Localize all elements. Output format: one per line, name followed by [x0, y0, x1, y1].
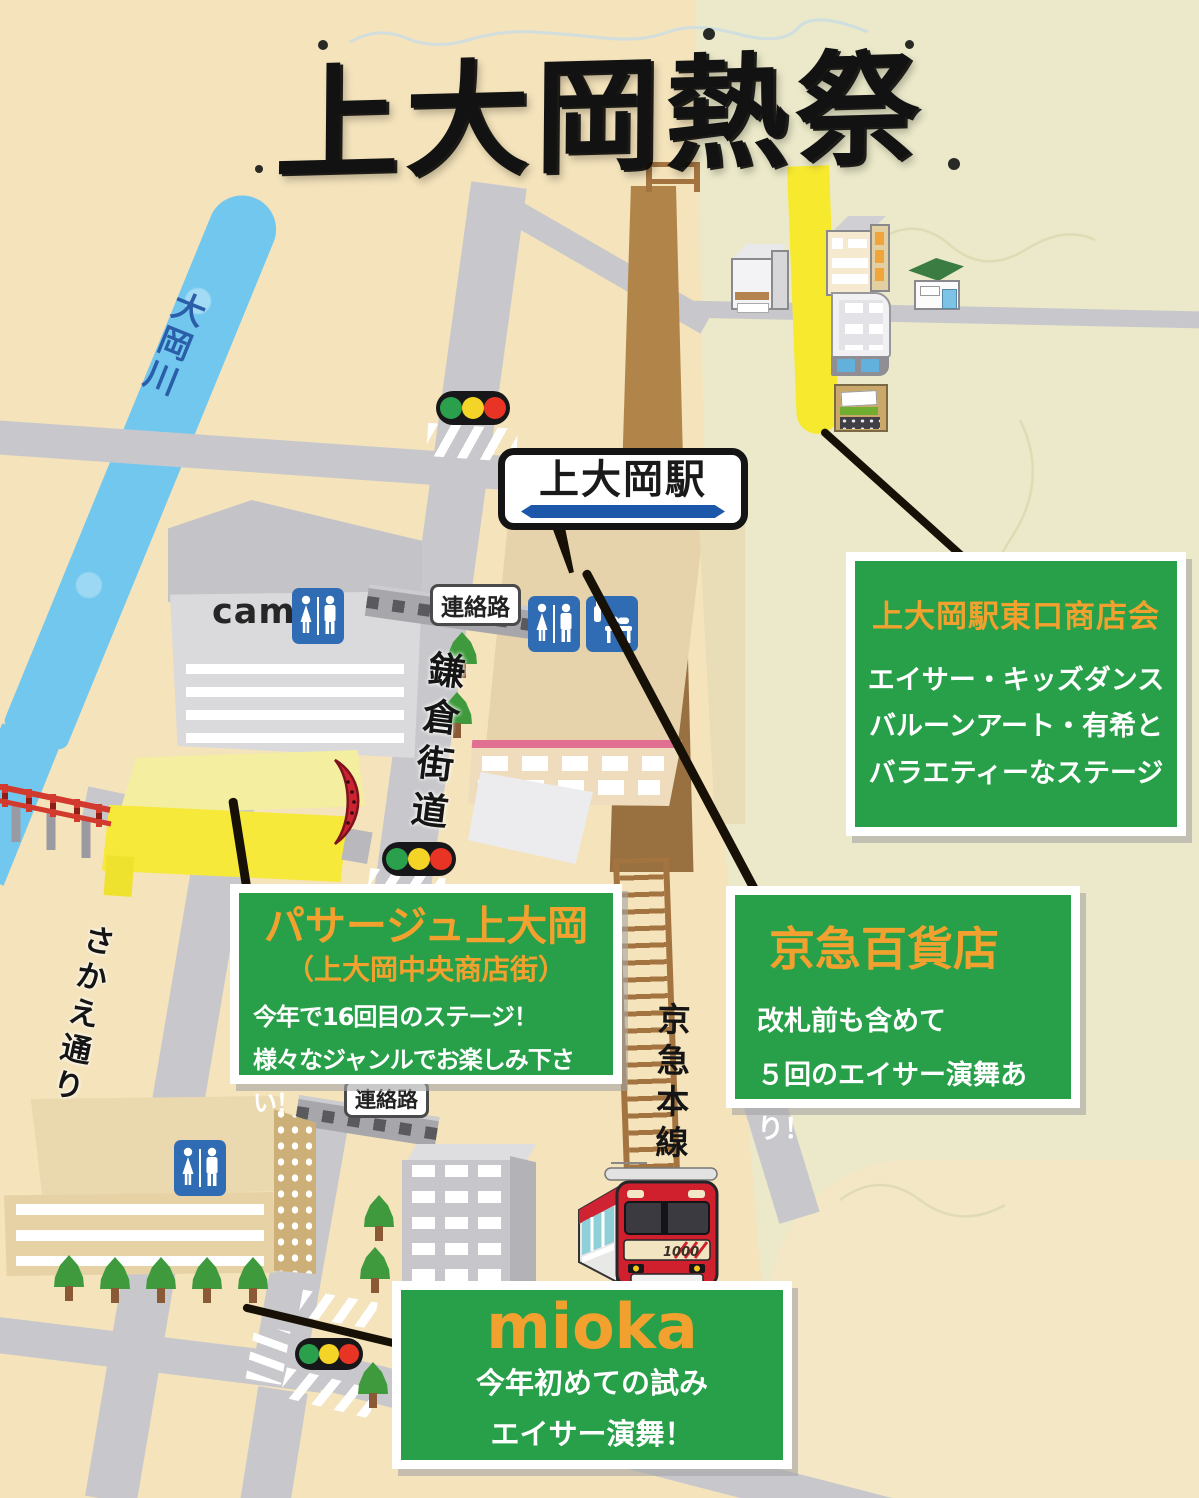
ink-splatter — [255, 165, 263, 173]
ink-splatter — [703, 28, 715, 40]
infobox-mioka: mioka 今年初めての試み エイサー演舞！ — [392, 1281, 792, 1469]
infobox-line: バラエティーなステージ — [855, 751, 1177, 797]
infobox-line: 今年で16回目のステージ！ — [239, 996, 613, 1039]
station-windows — [482, 756, 664, 771]
ink-splatter — [318, 40, 328, 50]
tree-icon — [52, 1255, 86, 1301]
infobox-passage-kamiooka: パサージュ上大岡 （上大岡中央商店街） 今年で16回目のステージ！ 様々なジャン… — [230, 884, 622, 1084]
white-box-building — [731, 236, 787, 308]
awning-shop — [834, 380, 888, 430]
traffic-light-icon — [382, 842, 456, 876]
infobox-line: 今年初めての試み — [401, 1358, 783, 1409]
infobox-keikyu-department-store: 京急百貨店 改札前も含めて ５回のエイサー演舞あり！ — [726, 886, 1080, 1108]
blue-line-bar — [521, 505, 725, 518]
house-body — [914, 280, 960, 310]
station-sign-label: 上大岡駅 — [505, 458, 741, 502]
shop-body — [834, 384, 888, 432]
sakae-dori-label: さかえ通り — [39, 919, 121, 1109]
terrain-southeast-region — [770, 1160, 1199, 1498]
station-pink-stripe — [468, 740, 682, 748]
window — [920, 286, 940, 296]
building-band — [735, 292, 769, 300]
building-side — [870, 224, 890, 292]
ink-splatter — [545, 82, 553, 90]
passage-arcade-leg — [104, 855, 135, 897]
traffic-light-icon — [436, 391, 510, 425]
train-number: 1000 — [663, 1245, 699, 1260]
door — [942, 289, 957, 309]
infobox-line: エイサー・キッズダンス — [855, 658, 1177, 704]
window — [875, 250, 884, 263]
infobox-line: エイサー演舞！ — [401, 1409, 783, 1460]
infobox-title: パサージュ上大岡 — [239, 905, 613, 948]
storefront — [840, 417, 880, 429]
ink-splatter — [905, 40, 914, 49]
road-north-fork — [493, 192, 713, 334]
green-roof-house — [906, 258, 964, 308]
infobox-line: 改札前も含めて — [735, 995, 1071, 1049]
tree-icon — [236, 1257, 270, 1303]
restroom-icon — [174, 1140, 226, 1196]
tree-icon — [144, 1257, 178, 1303]
infobox-line: バルーンアート・有希と — [855, 704, 1177, 750]
tree-icon — [190, 1257, 224, 1303]
window — [832, 274, 868, 284]
cream-office-building — [826, 216, 886, 296]
shop-window — [837, 359, 855, 372]
window — [832, 238, 843, 249]
infobox-line: ５回のエイサー演舞あり！ — [735, 1049, 1071, 1157]
window — [875, 268, 884, 281]
traffic-light-icon — [295, 1338, 363, 1370]
window — [832, 258, 868, 268]
bridge-icon — [0, 762, 114, 860]
passage-arcade — [102, 800, 348, 882]
station-sign: 上大岡駅 — [498, 448, 748, 530]
festival-map: camio 連絡路 連絡路 — [0, 0, 1199, 1498]
tree-icon — [358, 1247, 392, 1293]
window — [875, 232, 884, 245]
renrakuro-tag-upper: 連絡路 — [430, 584, 521, 626]
infobox-east-exit-shops: 上大岡駅東口商店会 エイサー・キッズダンス バルーンアート・有希と バラエティー… — [846, 552, 1186, 836]
tree-icon — [356, 1362, 390, 1408]
window — [848, 239, 867, 248]
shop-window — [861, 359, 879, 372]
infobox-line: 様々なジャンルでお楽しみ下さい！ — [239, 1039, 613, 1125]
infobox-title: 上大岡駅東口商店会 — [855, 591, 1177, 636]
road-south-leg — [240, 1386, 307, 1498]
shop-sign — [841, 390, 878, 407]
camio-window-stripes — [186, 664, 404, 750]
watermelon-arch-icon — [326, 758, 376, 846]
building-front — [826, 230, 874, 296]
window-grid — [839, 300, 883, 350]
tree-icon — [362, 1195, 396, 1241]
infobox-title: mioka — [401, 1296, 783, 1358]
page-title: 上大岡熱祭 — [224, 6, 975, 206]
restroom-icon — [528, 596, 580, 652]
building-sign — [737, 303, 769, 313]
awning — [840, 407, 878, 415]
storefront — [831, 356, 889, 376]
infobox-subtitle: （上大岡中央商店街） — [239, 948, 613, 988]
ink-splatter — [948, 158, 960, 170]
keikyu-main-line-label: 京急本線 — [645, 1002, 696, 1167]
building-front — [731, 258, 773, 310]
station-east-wing — [699, 524, 745, 824]
infobox-title: 京急百貨店 — [735, 913, 1071, 979]
white-shop-building — [831, 292, 891, 376]
mioka-building-side — [274, 1106, 316, 1274]
tree-icon — [98, 1257, 132, 1303]
building-side — [771, 250, 789, 310]
building-front — [831, 292, 891, 358]
restroom-icon — [292, 588, 344, 644]
